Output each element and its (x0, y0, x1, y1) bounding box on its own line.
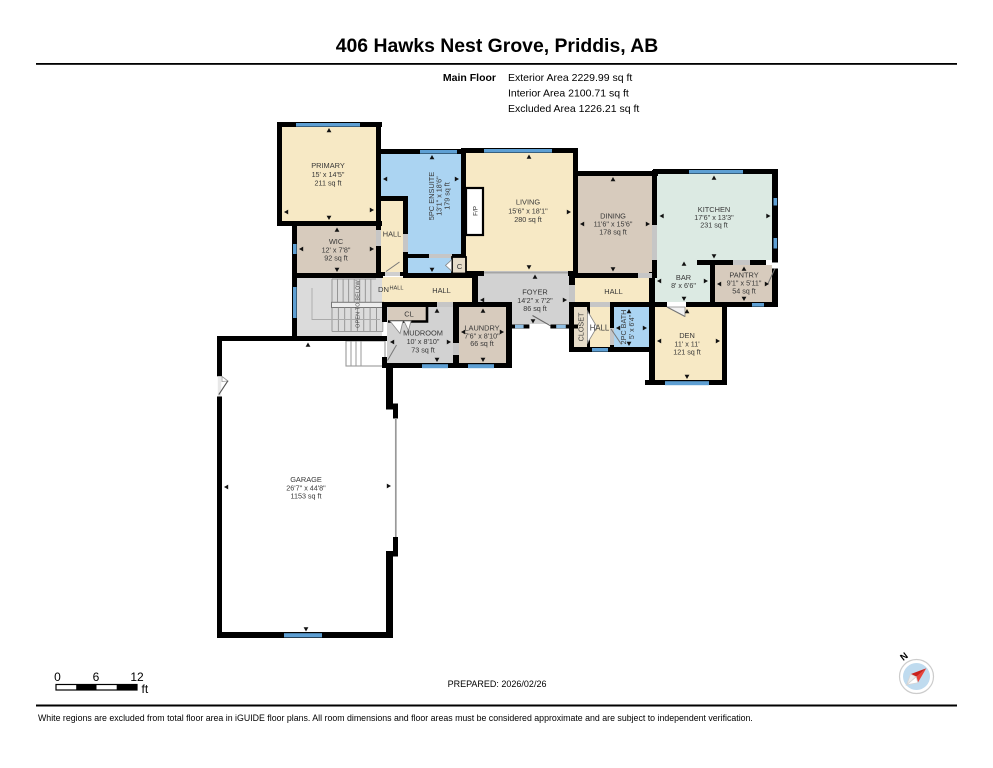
svg-text:PREPARED: 2026/02/26: PREPARED: 2026/02/26 (448, 679, 547, 689)
svg-text:231 sq ft: 231 sq ft (700, 221, 728, 230)
svg-text:178 sq ft: 178 sq ft (599, 227, 627, 236)
svg-text:LIVING: LIVING (516, 198, 540, 207)
svg-text:280 sq ft: 280 sq ft (514, 215, 542, 224)
svg-text:6: 6 (93, 670, 100, 684)
svg-text:Interior Area 2100.71 sq ft: Interior Area 2100.71 sq ft (508, 88, 629, 100)
svg-text:Exterior Area 2229.99 sq ft: Exterior Area 2229.99 sq ft (508, 72, 632, 84)
svg-text:5' x 6'4": 5' x 6'4" (629, 314, 636, 339)
svg-text:86 sq ft: 86 sq ft (523, 304, 547, 313)
svg-text:C: C (457, 262, 463, 271)
svg-text:F/P: F/P (473, 206, 480, 216)
svg-text:ft: ft (142, 682, 149, 696)
svg-text:406 Hawks Nest Grove, Priddis,: 406 Hawks Nest Grove, Priddis, AB (336, 35, 659, 57)
svg-text:HALL: HALL (390, 286, 404, 292)
svg-text:121 sq ft: 121 sq ft (673, 348, 701, 357)
svg-text:92 sq ft: 92 sq ft (324, 254, 348, 263)
svg-text:DN: DN (378, 285, 389, 294)
svg-text:CL: CL (404, 309, 413, 318)
svg-text:HALL: HALL (432, 286, 451, 295)
svg-text:8' x 6'6": 8' x 6'6" (671, 281, 696, 290)
svg-text:HALL: HALL (590, 324, 610, 333)
svg-text:HALL: HALL (383, 230, 402, 239)
svg-text:OPEN TO BELOW: OPEN TO BELOW (356, 279, 362, 327)
svg-text:211 sq ft: 211 sq ft (314, 178, 341, 187)
svg-text:1153 sq ft: 1153 sq ft (290, 492, 321, 501)
svg-text:White regions are excluded fro: White regions are excluded from total fl… (38, 713, 753, 723)
svg-text:2PC BATH: 2PC BATH (619, 310, 628, 345)
svg-text:CLOSET: CLOSET (577, 312, 586, 341)
svg-text:54 sq ft: 54 sq ft (732, 286, 756, 295)
svg-text:PRIMARY: PRIMARY (311, 161, 345, 170)
svg-text:66 sq ft: 66 sq ft (470, 339, 494, 348)
svg-text:179 sq ft: 179 sq ft (442, 182, 451, 210)
svg-text:73 sq ft: 73 sq ft (411, 346, 435, 355)
svg-text:0: 0 (54, 670, 61, 684)
svg-text:Excluded Area 1226.21 sq ft: Excluded Area 1226.21 sq ft (508, 103, 639, 115)
svg-text:Main Floor: Main Floor (443, 72, 496, 84)
svg-text:HALL: HALL (604, 287, 623, 296)
